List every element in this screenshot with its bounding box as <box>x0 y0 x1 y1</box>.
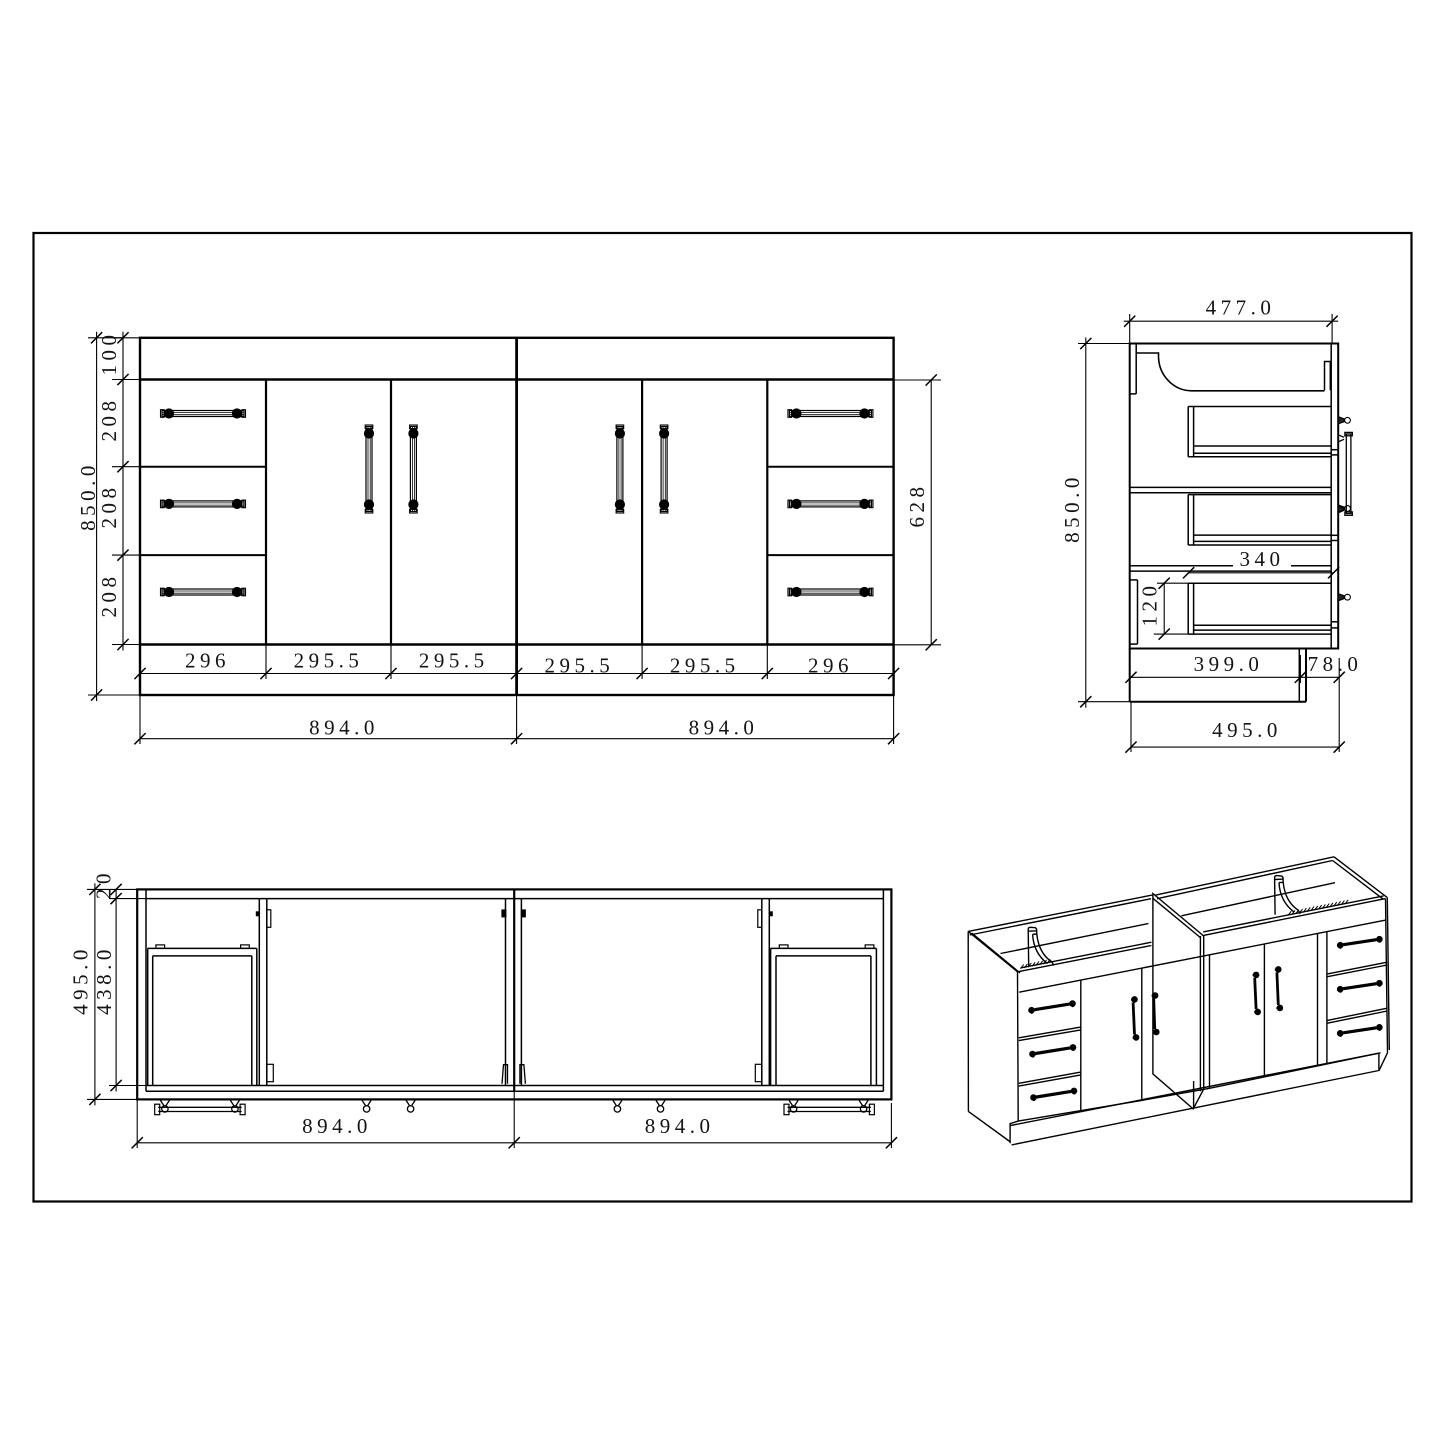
svg-text:850.0: 850.0 <box>76 461 100 531</box>
svg-text:296: 296 <box>808 654 853 678</box>
svg-text:100: 100 <box>97 331 121 376</box>
svg-text:208: 208 <box>97 397 121 442</box>
svg-text:495.0: 495.0 <box>1212 718 1282 742</box>
svg-text:120: 120 <box>1138 582 1162 627</box>
svg-text:477.0: 477.0 <box>1206 296 1276 320</box>
svg-text:295.5: 295.5 <box>294 649 364 673</box>
svg-text:295.5: 295.5 <box>670 654 740 678</box>
svg-text:208: 208 <box>97 573 121 618</box>
svg-text:20: 20 <box>92 869 116 899</box>
svg-text:78.0: 78.0 <box>1308 652 1363 676</box>
svg-text:495.0: 495.0 <box>69 945 93 1015</box>
svg-text:340: 340 <box>1240 547 1285 571</box>
svg-text:295.5: 295.5 <box>419 649 489 673</box>
svg-text:850.0: 850.0 <box>1060 473 1084 543</box>
svg-text:438.0: 438.0 <box>92 945 116 1015</box>
svg-text:894.0: 894.0 <box>645 1114 715 1138</box>
svg-text:894.0: 894.0 <box>689 716 759 740</box>
svg-text:399.0: 399.0 <box>1194 652 1264 676</box>
svg-text:894.0: 894.0 <box>309 716 379 740</box>
svg-text:628: 628 <box>905 483 929 528</box>
svg-text:894.0: 894.0 <box>302 1114 372 1138</box>
svg-text:208: 208 <box>97 484 121 529</box>
svg-text:296: 296 <box>185 649 230 673</box>
svg-text:295.5: 295.5 <box>544 654 614 678</box>
